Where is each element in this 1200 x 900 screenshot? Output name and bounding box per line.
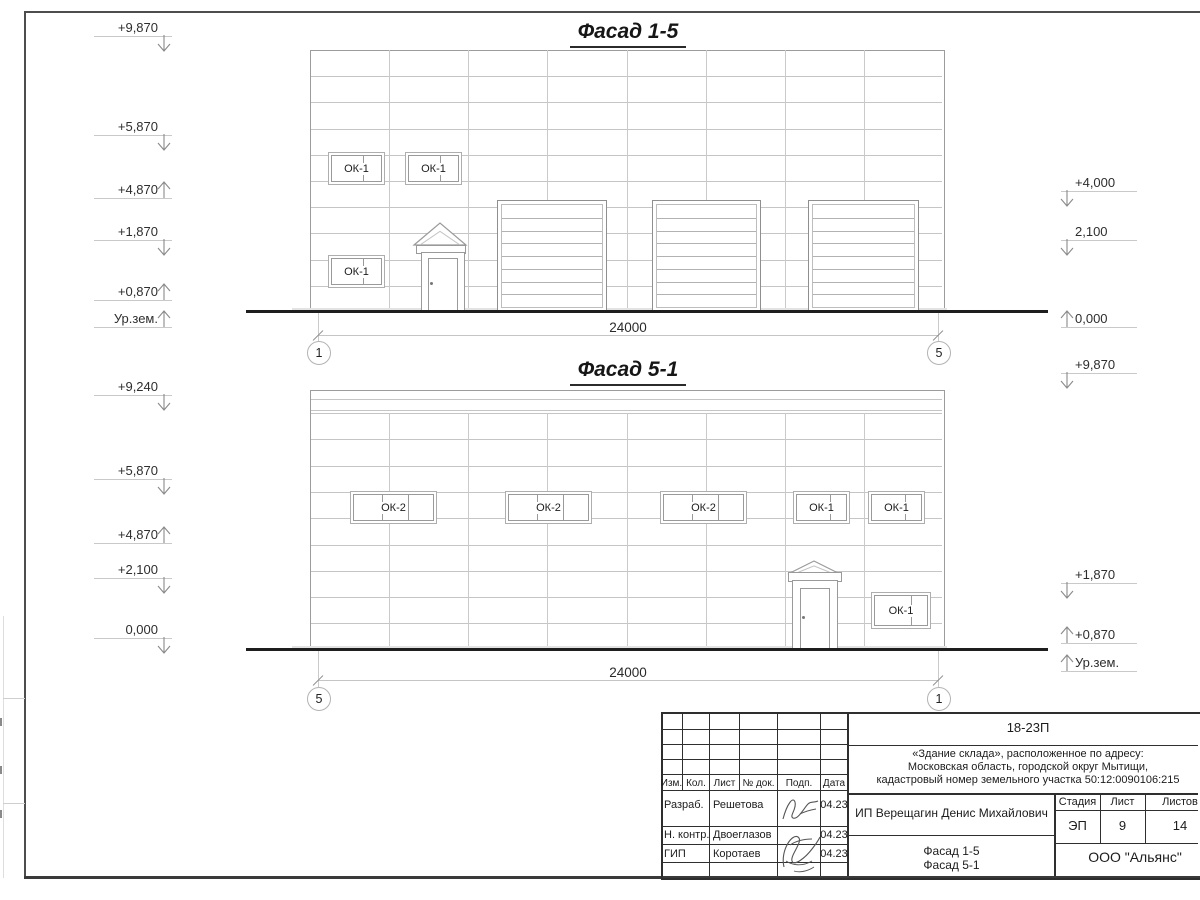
dimension-line <box>318 680 938 681</box>
door-handle-icon <box>430 282 433 285</box>
panel-mullion-line <box>547 413 548 648</box>
tb-line <box>1055 810 1198 811</box>
tb-line <box>661 744 848 745</box>
level-mark-label: +9,870 <box>1075 357 1145 372</box>
tb-date-nkontr: 04.23 <box>820 829 848 842</box>
window-label: ОК-2 <box>534 502 563 514</box>
tb-address-line2: Московская область, городской округ Мыти… <box>848 761 1200 774</box>
level-mark-label: +4,870 <box>90 527 158 542</box>
window-label: ОК-1 <box>882 502 911 514</box>
level-mark-label: +9,870 <box>90 20 158 35</box>
axis-marker: 5 <box>927 341 951 365</box>
ground-line <box>246 310 1048 313</box>
level-mark-arrow-up-icon <box>1059 622 1075 644</box>
window-ок-1: ОК-1 <box>328 255 385 288</box>
panel-mullion-line <box>468 413 469 648</box>
level-mark-label: +0,870 <box>1075 627 1145 642</box>
gate-slat <box>657 269 756 270</box>
tb-date-razrab: 04.23 <box>820 799 848 812</box>
window-ок-1: ОК-1 <box>328 152 385 185</box>
panel-mullion-line <box>627 413 628 648</box>
gate-slat <box>502 218 602 219</box>
tb-company: ООО "Альянс" <box>1055 851 1200 864</box>
gate-slat <box>657 218 756 219</box>
gate-frame <box>656 204 757 308</box>
tb-role-gip: ГИП <box>664 848 709 861</box>
tb-list-value: 9 <box>1100 819 1145 832</box>
dimension-line <box>318 335 938 336</box>
gate-slat <box>813 256 914 257</box>
gate-slat <box>502 282 602 283</box>
level-mark-arrow-down-icon <box>1059 372 1075 394</box>
gate-slat <box>813 282 914 283</box>
level-mark-label: 0,000 <box>90 622 158 637</box>
tb-name-razrab: Решетова <box>713 799 775 812</box>
tb-sheet-title-2: Фасад 5-1 <box>848 859 1055 872</box>
signature <box>780 792 820 825</box>
tb-col-data: Дата <box>820 777 848 790</box>
gate-slat <box>502 231 602 232</box>
tb-project-code: 18-23П <box>848 721 1200 734</box>
panel-mullion-line <box>389 50 390 310</box>
gate-slat <box>657 294 756 295</box>
tb-line <box>661 729 848 730</box>
level-mark-arrow-up-icon <box>156 306 172 328</box>
gate-door <box>497 200 607 312</box>
tb-line <box>848 745 1198 746</box>
tb-stage-value: ЭП <box>1055 819 1100 832</box>
tb-sheet-title-1: Фасад 1-5 <box>848 845 1055 858</box>
level-mark-arrow-down-icon <box>156 239 172 261</box>
level-mark-arrow-down-icon <box>1059 582 1075 604</box>
gate-slat <box>813 269 914 270</box>
gate-slat <box>657 282 756 283</box>
level-mark-arrow-down-icon <box>1059 190 1075 212</box>
gate-slat <box>657 231 756 232</box>
panel-mullion-line <box>627 50 628 310</box>
door-leaf <box>428 258 458 312</box>
door-handle-icon <box>802 616 805 619</box>
tb-line <box>661 759 848 760</box>
axis-extension-line <box>938 313 939 341</box>
facade-title: Фасад 5-1 <box>518 358 738 386</box>
panel-mullion-line <box>785 413 786 648</box>
panel-mullion-line <box>785 50 786 310</box>
window-ок-2: ОК-2 <box>505 491 592 524</box>
gate-slat <box>502 269 602 270</box>
parapet-band-line <box>311 399 942 400</box>
gate-slat <box>502 294 602 295</box>
axis-marker: 1 <box>307 341 331 365</box>
panel-mullion-line <box>864 413 865 648</box>
tb-stage-col: Стадия <box>1055 796 1100 809</box>
gate-slat <box>813 243 914 244</box>
tb-role-nkontr: Н. контр. <box>664 829 712 842</box>
window-label: ОК-1 <box>342 163 371 175</box>
dimension-label: 24000 <box>568 665 688 679</box>
tb-line <box>848 835 1055 836</box>
level-mark-label: +2,100 <box>90 562 158 577</box>
tb-date-gip: 04.23 <box>820 848 848 861</box>
window-ок-1: ОК-1 <box>405 152 462 185</box>
level-mark-arrow-down-icon <box>156 478 172 500</box>
window-label: ОК-1 <box>807 502 836 514</box>
level-mark-label: 0,000 <box>1075 311 1145 326</box>
window-ок-2: ОК-2 <box>660 491 747 524</box>
tb-line <box>661 790 848 791</box>
tb-col-kol: Кол. <box>682 777 710 790</box>
tb-list-col: Лист <box>1100 796 1145 809</box>
level-mark-arrow-down-icon <box>156 394 172 416</box>
tb-listov-col: Листов <box>1145 796 1200 809</box>
gate-frame <box>812 204 915 308</box>
level-mark-label: +5,870 <box>90 119 158 134</box>
window-ок-1: ОК-1 <box>793 491 850 524</box>
level-mark-label: Ур.зем. <box>1075 655 1145 670</box>
tb-line <box>661 774 848 775</box>
facade-title: Фасад 1-5 <box>518 20 738 48</box>
tb-col-podp: Подп. <box>777 777 821 790</box>
level-mark-label: +4,000 <box>1075 175 1145 190</box>
tb-address-line3: кадастровый номер земельного участка 50:… <box>848 774 1200 787</box>
level-mark-arrow-up-icon <box>156 522 172 544</box>
level-mark-label: +9,240 <box>90 379 158 394</box>
gate-frame <box>501 204 603 308</box>
facade-title-text: Фасад 5-1 <box>570 358 687 386</box>
tb-col-list: Лист <box>709 777 740 790</box>
window-ок-1: ОК-1 <box>868 491 925 524</box>
axis-extension-line <box>318 313 319 341</box>
tb-col-izm: Изм. <box>660 777 683 790</box>
panel-mullion-line <box>389 413 390 648</box>
tb-address-line1: «Здание склада», расположенное по адресу… <box>848 748 1200 761</box>
level-mark-arrow-up-icon <box>1059 650 1075 672</box>
axis-marker: 5 <box>307 687 331 711</box>
panel-mullion-line <box>468 50 469 310</box>
level-mark-label: +1,870 <box>1075 567 1145 582</box>
ground-line <box>246 648 1048 651</box>
gate-door <box>808 200 919 312</box>
level-mark-arrow-up-icon <box>156 279 172 301</box>
tb-line <box>1055 843 1198 844</box>
tb-client: ИП Верещагин Денис Михайлович <box>848 807 1055 820</box>
window-label: ОК-1 <box>887 605 916 617</box>
level-mark-label: +4,870 <box>90 182 158 197</box>
gate-door <box>652 200 761 312</box>
tb-col-ndok: № док. <box>739 777 778 790</box>
door-pediment-icon <box>412 221 468 246</box>
level-mark-arrow-down-icon <box>156 134 172 156</box>
level-mark-arrow-down-icon <box>1059 239 1075 261</box>
window-ок-2: ОК-2 <box>350 491 437 524</box>
gate-slat <box>657 256 756 257</box>
tb-name-gip: Коротаев <box>713 848 775 861</box>
level-mark-arrow-down-icon <box>156 35 172 57</box>
gate-slat <box>502 256 602 257</box>
parapet-band-line <box>311 410 942 411</box>
tb-line <box>709 714 710 876</box>
tb-role-razrab: Разраб. <box>664 799 709 812</box>
panel-mullion-line <box>706 413 707 648</box>
level-mark-arrow-down-icon <box>156 637 172 659</box>
window-label: ОК-1 <box>419 163 448 175</box>
level-mark-label: +0,870 <box>90 284 158 299</box>
axis-extension-line <box>938 651 939 687</box>
gate-slat <box>813 231 914 232</box>
axis-extension-line <box>318 651 319 687</box>
dimension-label: 24000 <box>568 320 688 334</box>
screenshot-root: { "sheet": { "facades": [ { "title": "Фа… <box>0 0 1200 900</box>
axis-marker: 1 <box>927 687 951 711</box>
gate-slat <box>657 243 756 244</box>
tb-line <box>848 793 1198 795</box>
window-ок-1: ОК-1 <box>871 592 931 629</box>
level-mark-label: +5,870 <box>90 463 158 478</box>
window-label: ОК-2 <box>379 502 408 514</box>
tb-name-nkontr: Двоеглазов <box>713 829 777 842</box>
gate-slat <box>502 243 602 244</box>
window-label: ОК-2 <box>689 502 718 514</box>
gate-slat <box>813 294 914 295</box>
level-mark-label: 2,100 <box>1075 224 1145 239</box>
level-mark-label: Ур.зем. <box>90 311 158 326</box>
level-mark-arrow-up-icon <box>1059 306 1075 328</box>
level-mark-arrow-up-icon <box>156 177 172 199</box>
tb-listov-value: 14 <box>1145 819 1200 832</box>
level-mark-label: +1,870 <box>90 224 158 239</box>
signature <box>778 827 822 875</box>
window-label: ОК-1 <box>342 266 371 278</box>
facade-title-text: Фасад 1-5 <box>570 20 687 48</box>
level-mark-arrow-down-icon <box>156 577 172 599</box>
gate-slat <box>813 218 914 219</box>
door-leaf <box>800 588 830 650</box>
